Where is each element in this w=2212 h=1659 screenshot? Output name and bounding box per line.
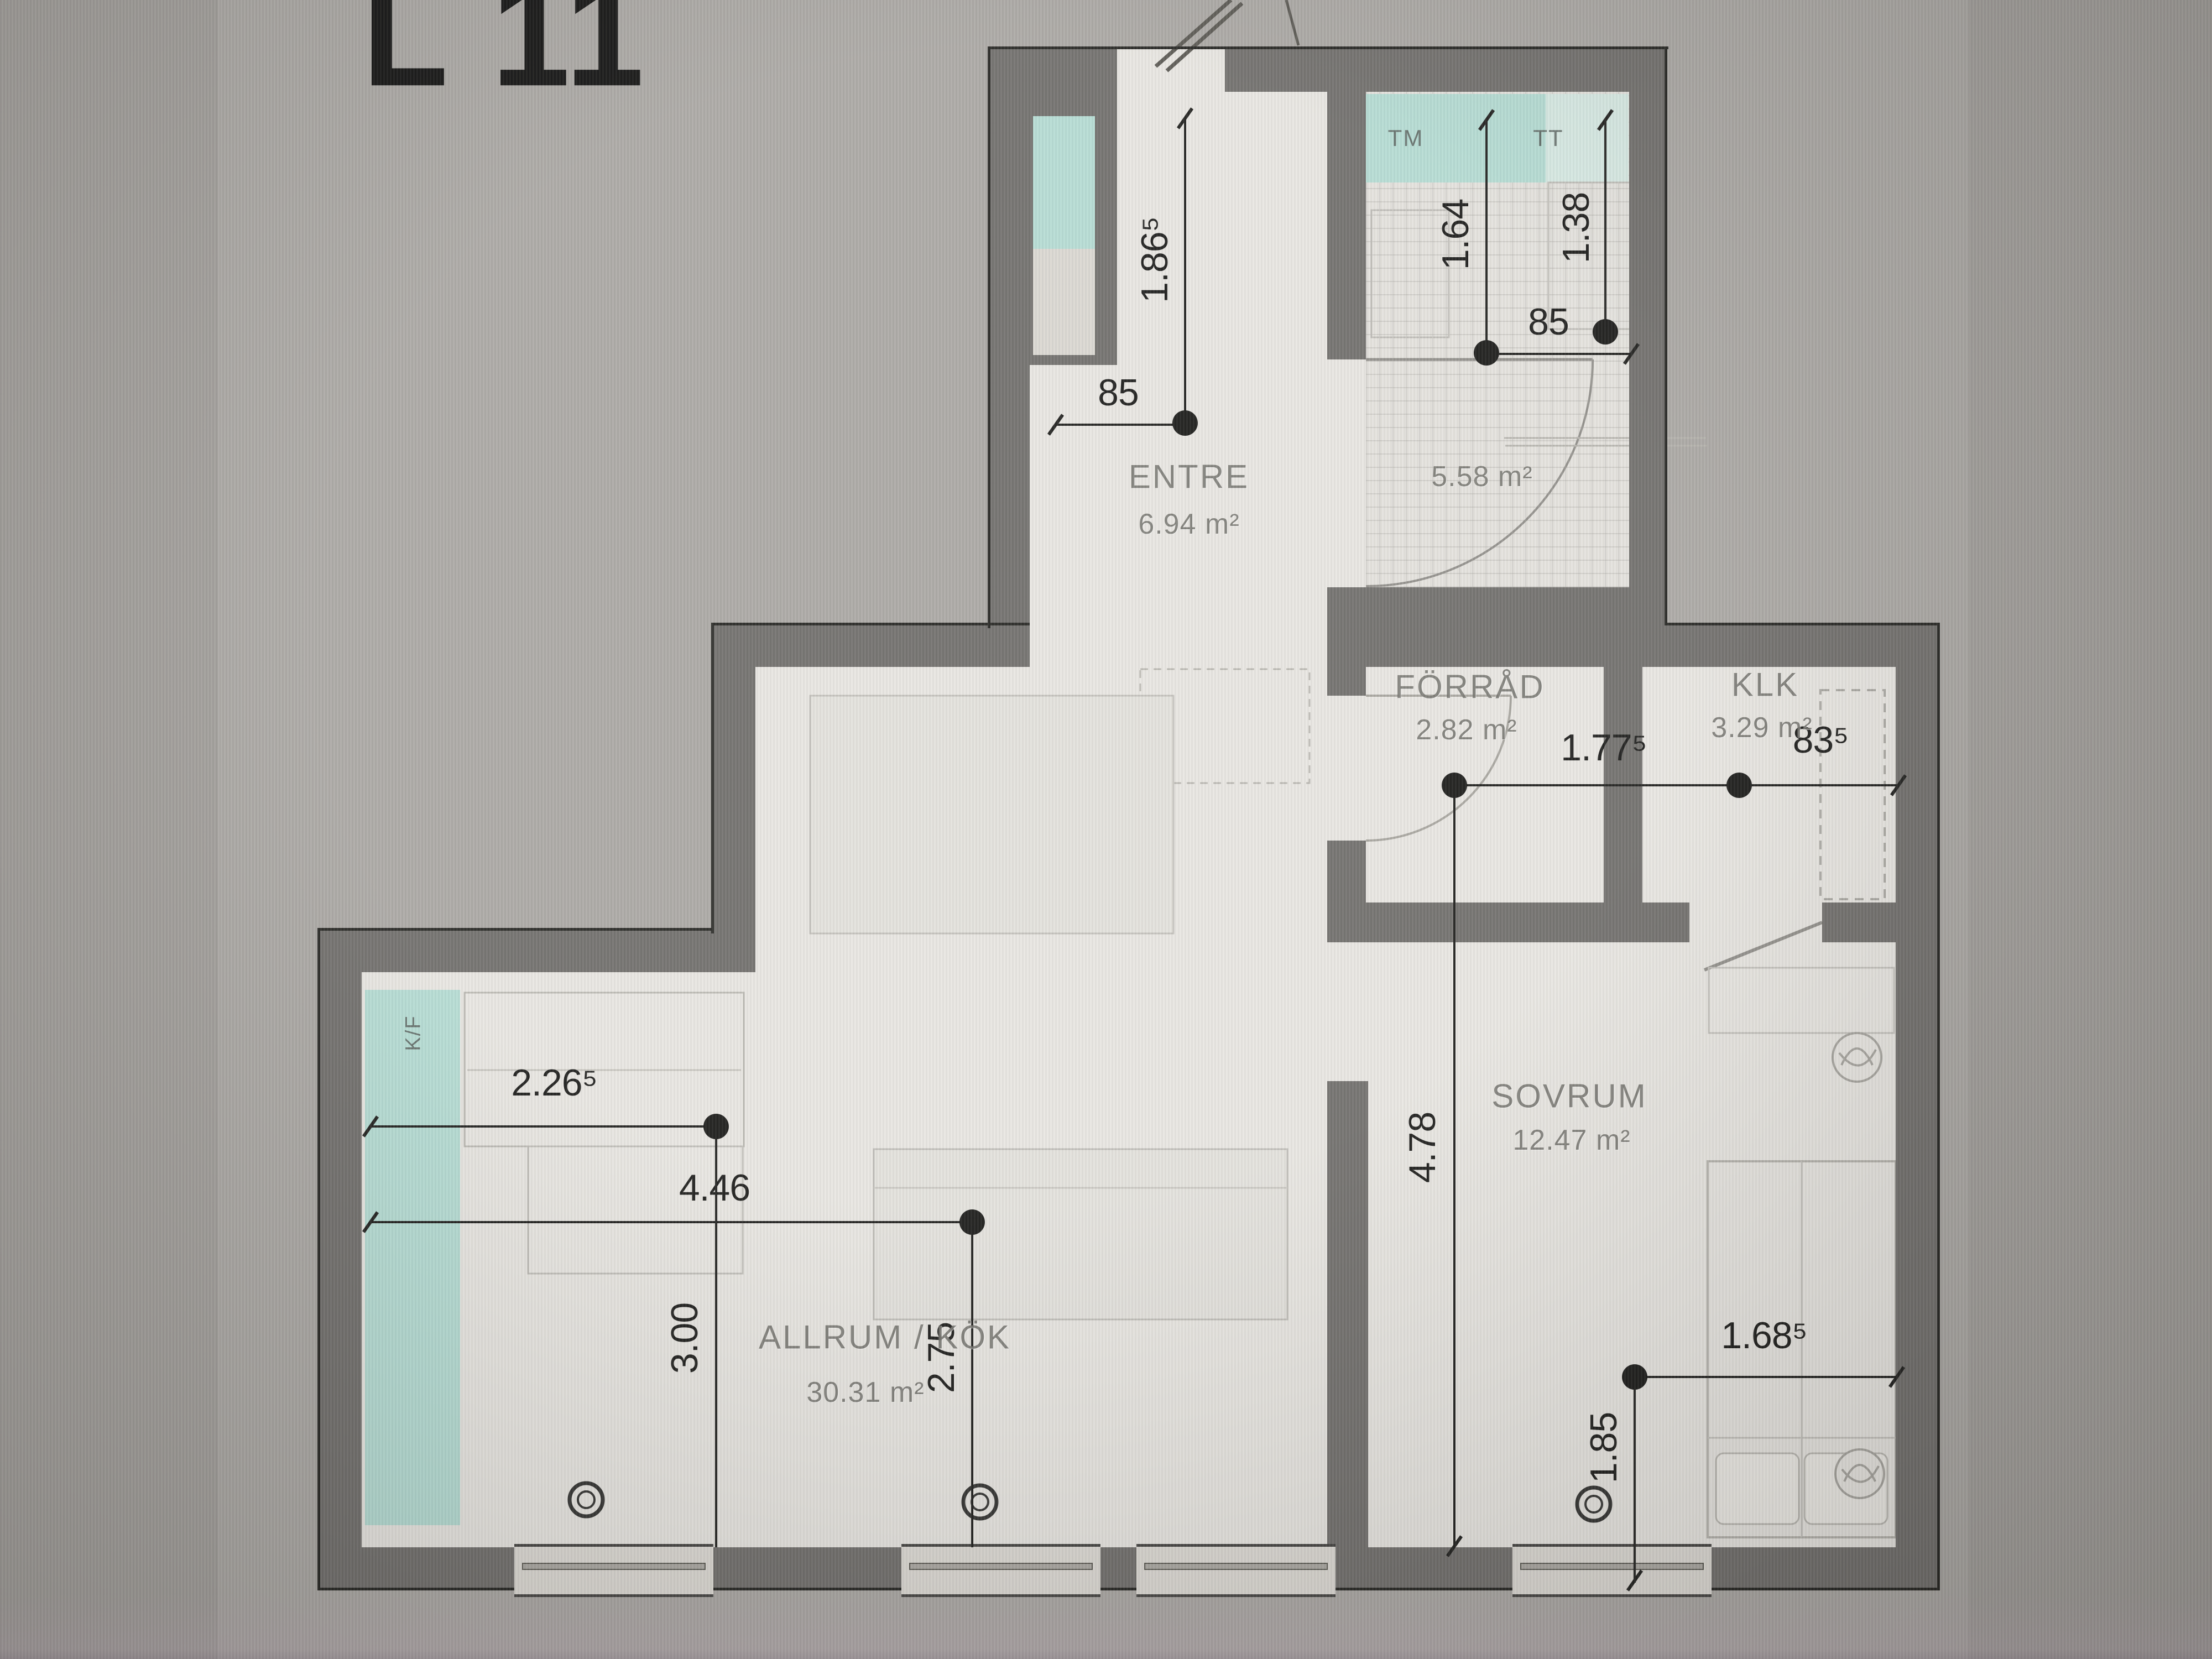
dimension-line [369,1125,716,1128]
wall [713,1547,901,1588]
outline [1665,46,1667,625]
room-area-sovrum: 12.47 m² [1512,1124,1630,1157]
window [901,1544,1100,1597]
dimension-line [369,1221,972,1223]
dim-label-lower-depth: 4.78 [1401,1112,1444,1183]
dim-label-bath-opening: 85 [1528,300,1569,343]
wall [1896,625,1938,1588]
dimension-line [1184,117,1186,423]
outline [317,928,714,931]
outline [1666,623,1940,625]
wall [713,625,755,935]
entry-door-jamb-line [1286,0,1298,45]
room-area-allrum: 30.31 m² [806,1376,924,1409]
window [514,1544,713,1597]
outline [711,623,1030,625]
wall [1327,1081,1368,1547]
fixture-label-washing-machine: TM [1388,125,1424,152]
wall [1327,902,1642,942]
dimension-node [959,1209,985,1235]
dimension-node [1442,773,1467,798]
kitchen-island [528,1146,743,1274]
floorplan-photo: L 11 [0,0,2212,1659]
dim-label-entre-opening: 85 [1098,371,1139,414]
wall [1712,1547,1938,1588]
vent-fan-icon [1833,1033,1881,1082]
dimension-line [1454,784,1900,786]
dimension-line [1604,119,1606,332]
wall [1822,902,1897,942]
window [1512,1544,1712,1597]
bed-pillow [1716,1453,1799,1524]
dimension-line [971,1222,973,1547]
dining-group [810,696,1173,933]
dim-label-allrum-width: 4.46 [679,1166,750,1209]
room-label-sovrum: SOVRUM [1491,1077,1647,1115]
outline [988,46,1668,49]
outline [988,46,990,628]
dim-label-entre-depth: 1.86⁵ [1133,217,1176,303]
dimension-node [1726,773,1752,798]
fixture-label-dryer: TT [1533,125,1563,152]
wall [1225,49,1666,92]
window [1136,1544,1335,1597]
wall [320,1547,514,1588]
shower-screen [1504,438,1707,446]
fixture-label-fridge-freezer: K/F [402,1015,426,1051]
wall [1629,49,1666,628]
wall [320,930,755,972]
dim-label-forrad-width: 1.77⁵ [1561,726,1647,769]
wall [1327,667,1366,696]
room-area-forrad: 2.82 m² [1416,713,1517,747]
wall [1335,1547,1512,1588]
dimension-line [1635,1376,1898,1378]
room-label-entre: ENTRE [1129,458,1249,496]
sovrum-shelf [1709,968,1894,1033]
dimension-line [1486,353,1631,355]
dimension-node [1172,410,1198,436]
dimension-line [1485,119,1488,353]
dimension-node [703,1114,729,1139]
wall [1100,1547,1136,1588]
dim-label-bath-left: 1.64 [1434,199,1477,270]
dim-label-sovrum-depth: 1.85 [1582,1412,1625,1483]
dim-label-bath-right: 1.38 [1554,192,1598,263]
dimension-node [1593,319,1618,345]
dimension-node [1474,340,1499,366]
room-label-klk: KLK [1731,666,1799,704]
vent-fan-icon [1835,1449,1884,1498]
room-area-klk: 3.29 m² [1711,711,1812,744]
wall [320,930,362,1588]
room-area-bathroom: 5.58 m² [1431,460,1532,493]
outline [317,928,320,1590]
room-area-entre: 6.94 m² [1138,508,1239,541]
dimension-line [1453,785,1455,1547]
wall [1604,667,1642,936]
outline [711,623,714,933]
dimension-line [1634,1377,1636,1583]
room-label-allrum: ALLRUM / KÖK [759,1318,1011,1357]
dim-label-sovrum-width: 1.68⁵ [1721,1314,1807,1357]
dimension-line [1056,424,1185,426]
dim-label-kitchen-run: 2.26⁵ [511,1061,597,1104]
sofa [874,1149,1287,1319]
outline [1937,623,1940,1590]
dimension-node [1622,1364,1647,1390]
klk-door-leaf [1704,922,1822,970]
wall [713,625,1030,667]
dim-label-allrum-left-depth: 3.00 [663,1303,706,1374]
wall [990,49,1030,628]
wall [1327,587,1666,667]
wall [1642,902,1689,942]
wall [1327,49,1366,359]
room-label-forrad: FÖRRÅD [1395,668,1545,706]
